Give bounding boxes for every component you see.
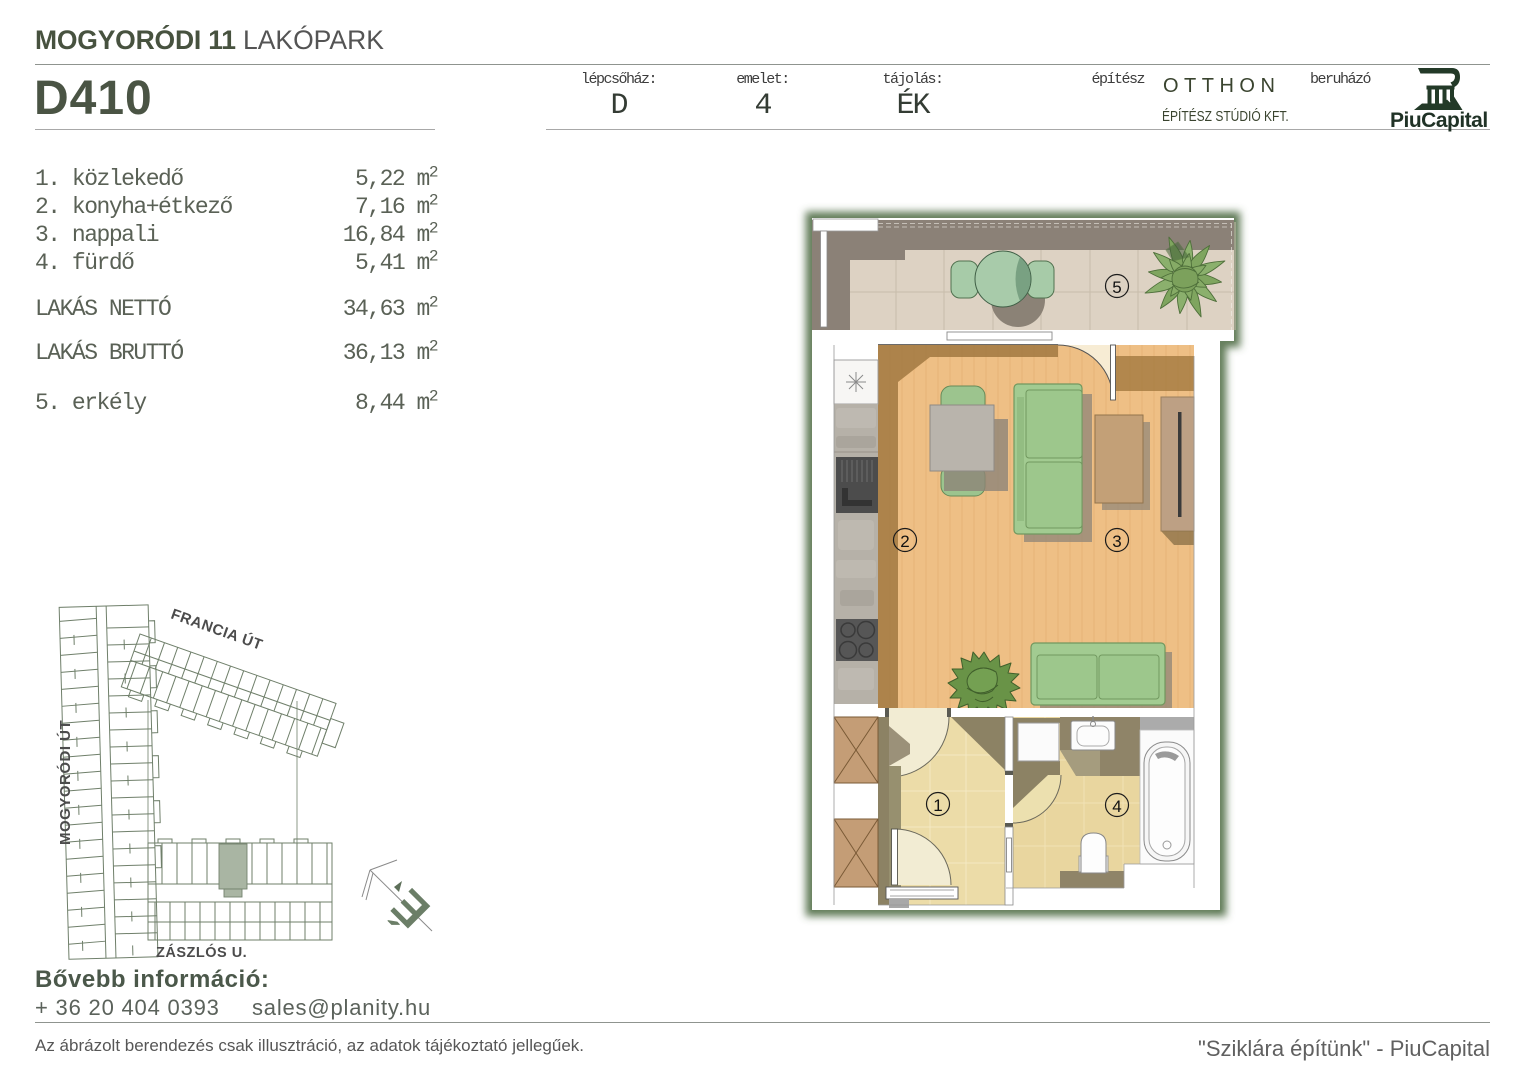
- svg-text:MOGYORÓDI ÚT: MOGYORÓDI ÚT: [56, 720, 74, 845]
- svg-text:1: 1: [933, 796, 942, 815]
- svg-text:2: 2: [900, 532, 909, 551]
- svg-text:ZÁSZLÓS U.: ZÁSZLÓS U.: [156, 943, 247, 961]
- svg-text:4: 4: [1112, 797, 1121, 816]
- svg-text:FRANCIA ÚT: FRANCIA ÚT: [169, 605, 266, 654]
- svg-text:3: 3: [1112, 532, 1121, 551]
- svg-text:5: 5: [1112, 278, 1121, 297]
- svg-text:PiuCapital: PiuCapital: [1390, 109, 1488, 132]
